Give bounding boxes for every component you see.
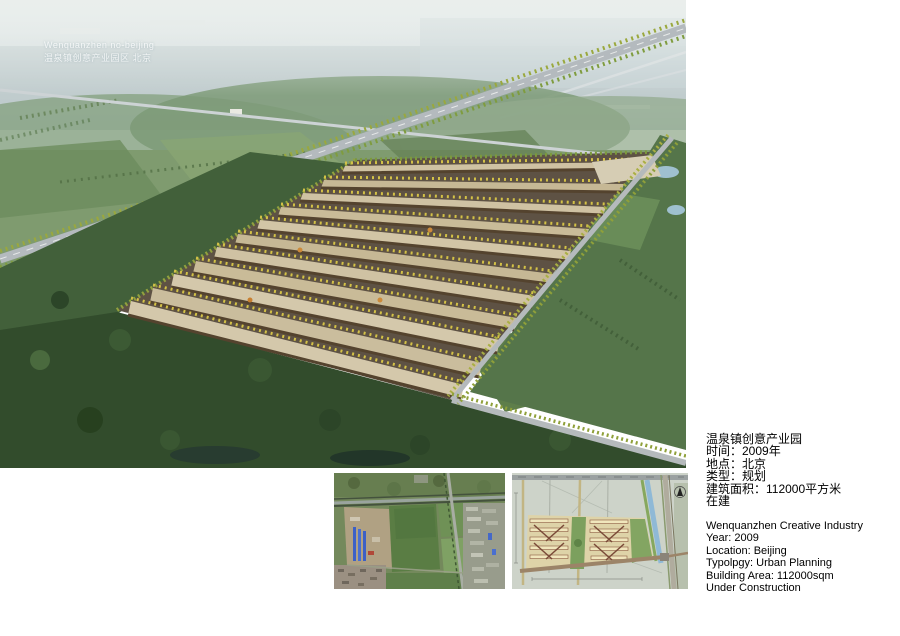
- watermark-line2: 温泉镇创意产业园区 北京: [44, 52, 154, 65]
- satellite-photo-thumbnail: [334, 473, 505, 589]
- site-plan-graphic: [512, 473, 688, 589]
- aerial-render-graphic: [0, 0, 686, 468]
- project-year-cn: 时间：2009年: [706, 445, 841, 457]
- project-status-cn: 在建: [706, 495, 841, 507]
- watermark: Wenquanzhen no-beijing 温泉镇创意产业园区 北京: [44, 39, 154, 65]
- project-type-cn: 类型：规划: [706, 470, 841, 482]
- project-status-en: Under Construction: [706, 582, 863, 594]
- watermark-line1: Wenquanzhen no-beijing: [44, 39, 154, 52]
- project-info-english: Wenquanzhen Creative Industry Year: 2009…: [706, 520, 863, 594]
- satellite-photo-graphic: [334, 473, 505, 589]
- project-area-en: Building Area: 112000sqm: [706, 570, 863, 582]
- project-year-en: Year: 2009: [706, 532, 863, 544]
- site-plan-thumbnail: [512, 473, 688, 589]
- project-type-en: Typolpgy: Urban Planning: [706, 557, 863, 569]
- project-info-chinese: 温泉镇创意产业园 时间：2009年 地点：北京 类型：规划 建筑面积：11200…: [706, 433, 841, 507]
- main-aerial-render: Wenquanzhen no-beijing 温泉镇创意产业园区 北京: [0, 0, 686, 468]
- project-location-en: Location: Beijing: [706, 545, 863, 557]
- portfolio-page: Wenquanzhen no-beijing 温泉镇创意产业园区 北京: [0, 0, 900, 636]
- project-title-en: Wenquanzhen Creative Industry: [706, 520, 863, 532]
